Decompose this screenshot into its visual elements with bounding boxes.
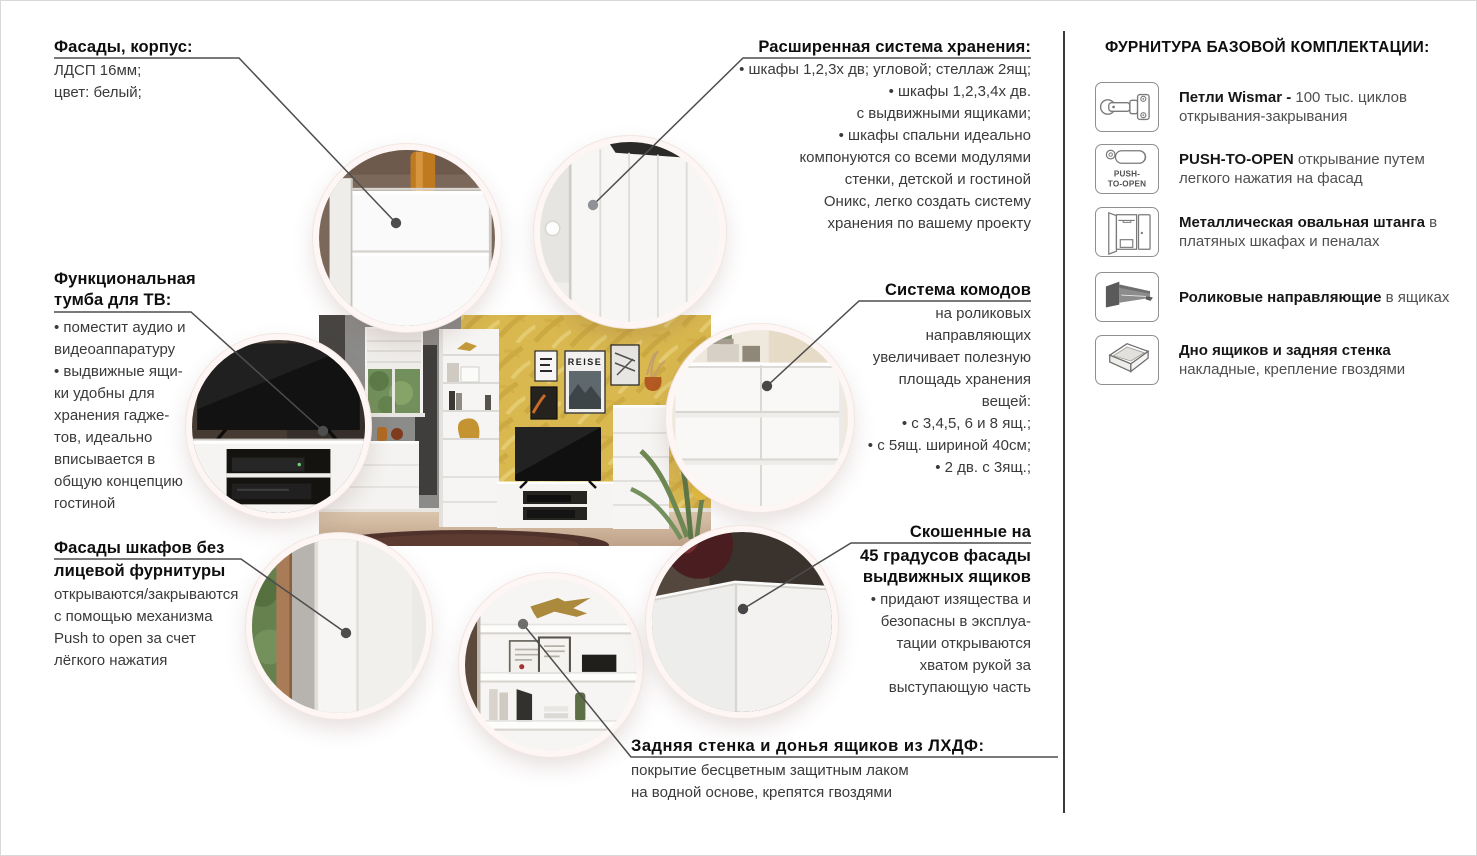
callout-line: хранения гадже- [54,405,229,427]
drawer-bottom-icon [1095,335,1159,385]
push-icon-label-2: TO-OPEN [1108,179,1146,188]
callout-line: • придают изящества и [791,589,1031,611]
hinge-icon [1095,82,1159,132]
callout-heading: Фасады шкафов без [54,538,269,559]
callout-line: • выдвижные ящи- [54,361,229,383]
callout-line: компонуются со всеми модулями [721,147,1031,169]
callout-line: вещей: [791,391,1031,413]
callout-line: гостиной [54,493,229,515]
hardware-item-text: Дно ящиков и задняя стенка накладные, кр… [1179,341,1463,379]
callout-line: • 2 дв. с 3ящ.; [791,457,1031,479]
callout-back-panel: Задняя стенка и донья ящиков из ЛХДФ: по… [631,736,1071,804]
callout-photo-drawer-fronts [313,144,501,332]
callout-line: тов, идеально [54,427,229,449]
callout-heading: выдвижных ящиков [791,567,1031,588]
callout-storage: Расширенная система хранения: • шкафы 1,… [721,37,1031,235]
callout-beveled: Скошенные на 45 градусов фасады выдвижны… [791,522,1031,699]
callout-line: с помощью механизма [54,606,269,628]
push-icon-label-1: PUSH- [1114,170,1140,179]
callout-line: с выдвижными ящиками; [721,103,1031,125]
callout-heading: Функциональная [54,269,229,290]
callout-line: покрытие бесцветным защитным лаком [631,760,1071,782]
hardware-item-text: Петли Wismar - 100 тыс. циклов открывани… [1179,88,1463,126]
living-room-scene: REISE [319,315,711,546]
callout-line: площадь хранения [791,369,1031,391]
roller-guides-icon [1095,272,1159,322]
callout-line: направляющих [791,325,1031,347]
hardware-item-oval-rail: Металлическая овальная штанга в платяных… [1095,207,1463,257]
callout-heading: Фасады, корпус: [54,37,284,58]
callout-line: ки удобны для [54,383,229,405]
hardware-item-text: PUSH-TO-OPEN открывание путем легкого на… [1179,150,1463,188]
callout-heading: Расширенная система хранения: [721,37,1031,58]
callout-commodes: Система комодов на роликовых направляющи… [791,280,1031,479]
callout-line: стенки, детской и гостиной [721,169,1031,191]
callout-line: • с 3,4,5, 6 и 8 ящ.; [791,413,1031,435]
living-room-photo: REISE [319,315,711,546]
callout-line: • поместит аудио и [54,317,229,339]
callout-line: цвет: белый; [54,82,284,104]
callout-line: лёгкого нажатия [54,650,269,672]
callout-photo-wardrobe [534,136,726,328]
callout-line: видеоаппаратуру [54,339,229,361]
callout-heading: Система комодов [791,280,1031,301]
callout-line: хранения по вашему проекту [721,213,1031,235]
callout-line: ЛДСП 16мм; [54,60,284,82]
callout-line: безопасны в эксплуа- [791,611,1031,633]
callout-line: • с 5ящ. шириной 40см; [791,435,1031,457]
callout-line: на роликовых [791,303,1031,325]
hardware-item-drawer-bottom: Дно ящиков и задняя стенка накладные, кр… [1095,335,1463,385]
callout-line: • шкафы 1,2,3х дв; угловой; стеллаж 2ящ; [721,59,1031,81]
oval-rail-icon [1095,207,1159,257]
hardware-item-text: Металлическая овальная штанга в платяных… [1179,213,1463,251]
callout-line: вписывается в [54,449,229,471]
callout-tv: Функциональная тумба для ТВ: • поместит … [54,269,229,515]
callout-line: на водной основе, крепятся гвоздями [631,782,1071,804]
callout-line: открываются/закрываются [54,584,269,606]
callout-photo-shelves [459,573,643,757]
sidebar-title: ФУРНИТУРА БАЗОВОЙ КОМПЛЕКТАЦИИ: [1105,39,1430,57]
reise-poster-text: REISE [568,357,603,367]
callout-push-fronts: Фасады шкафов без лицевой фурнитуры откр… [54,538,269,672]
push-to-open-icon: PUSH- TO-OPEN [1095,144,1159,194]
infographic-canvas: REISE [0,0,1477,856]
callout-line: • шкафы 1,2,3,4х дв. [721,81,1031,103]
callout-heading: Скошенные на [791,522,1031,543]
callout-line: тации открываются [791,633,1031,655]
callout-heading: 45 градусов фасады [791,546,1031,567]
callout-facades: Фасады, корпус: ЛДСП 16мм; цвет: белый; [54,37,284,104]
callout-heading: лицевой фурнитуры [54,561,269,582]
callout-line: • шкафы спальни идеально [721,125,1031,147]
hardware-item-text: Роликовые направляющие в ящиках [1179,288,1463,307]
callout-line: увеличивает полезную [791,347,1031,369]
hardware-item-hinges: Петли Wismar - 100 тыс. циклов открывани… [1095,82,1463,132]
callout-line: Push to open за счет [54,628,269,650]
callout-heading: Задняя стенка и донья ящиков из ЛХДФ: [631,736,1071,757]
hardware-item-push-to-open: PUSH- TO-OPEN PUSH-TO-OPEN открывание пу… [1095,144,1463,194]
callout-line: Оникс, легко создать систему [721,191,1031,213]
callout-line: хватом рукой за [791,655,1031,677]
callout-line: выступающую часть [791,677,1031,699]
callout-line: общую концепцию [54,471,229,493]
sidebar-divider [1063,31,1065,813]
callout-heading: тумба для ТВ: [54,290,229,311]
hardware-item-roller-guides: Роликовые направляющие в ящиках [1095,272,1463,322]
callout-photo-wardrobe-door [246,533,432,719]
